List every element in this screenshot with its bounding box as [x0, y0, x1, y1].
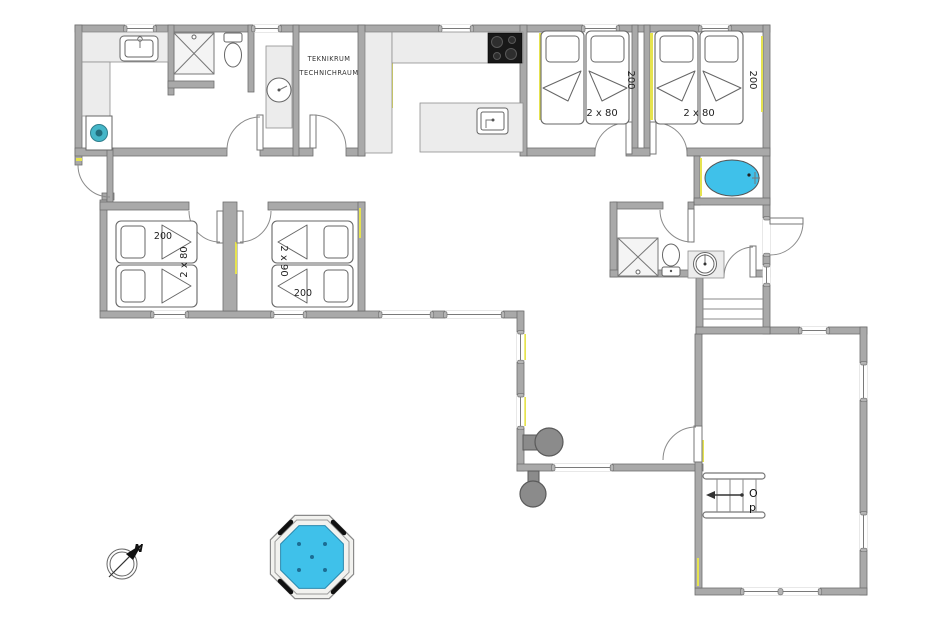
- bed-length-label: 200: [625, 70, 636, 89]
- compass-icon: N: [107, 542, 143, 579]
- kitchen: [365, 32, 523, 153]
- hot-tub-icon: [270, 515, 353, 598]
- window: [799, 327, 830, 335]
- window: [439, 25, 474, 33]
- bed-length-label: 200: [154, 231, 172, 242]
- kitchen-cabinet: [365, 32, 392, 153]
- toilet-icon: [224, 33, 242, 67]
- bedroom-top-middle: 2 x 80 200: [541, 31, 636, 124]
- bedroom-bottom-middle: 2 x 90 200: [272, 221, 353, 307]
- round-sink-icon: [688, 251, 724, 278]
- cooktop-icon: [488, 33, 522, 63]
- technical-room-label-1: TEKNIKRUM: [307, 55, 351, 63]
- island-sink-icon: [477, 108, 508, 134]
- window: [444, 311, 505, 319]
- window: [517, 394, 525, 430]
- bedroom-top-right: 2 x 80 200: [655, 31, 758, 124]
- door-bedroom-top-right: [650, 122, 687, 154]
- floor-plan-page: TEKNIKRUM TECHNICHRAUM: [0, 0, 930, 620]
- door-technical-room: [310, 115, 346, 148]
- bed-size-label: 2 x 90: [278, 245, 289, 276]
- window: [151, 311, 189, 319]
- technical-room-label-2: TECHNICHRAUM: [299, 69, 359, 77]
- bathtub-icon: [705, 160, 760, 196]
- shower-icon: [618, 238, 658, 276]
- window: [517, 331, 525, 364]
- technical-room: TEKNIKRUM TECHNICHRAUM: [299, 55, 359, 77]
- door-bathroom-1: [227, 115, 263, 150]
- door-bathroom-2: [660, 209, 694, 242]
- door-exterior-east: [763, 217, 803, 257]
- window: [252, 25, 282, 33]
- window: [379, 311, 434, 319]
- window: [860, 512, 868, 552]
- wood-stove-icon: [520, 471, 546, 507]
- shower-icon: [174, 33, 214, 74]
- door-bedroom-top-middle: [595, 122, 632, 154]
- window: [271, 311, 307, 319]
- window: [860, 362, 868, 402]
- bed-length-label: 200: [294, 288, 312, 299]
- washing-machine-icon: [86, 116, 112, 150]
- door-entrance: [78, 165, 110, 197]
- door-hall: [724, 246, 756, 277]
- window: [741, 588, 822, 596]
- bedroom-bottom-left: 200 2 x 80: [116, 221, 197, 307]
- window: [763, 264, 771, 287]
- window: [124, 25, 157, 33]
- bed-icon: [541, 31, 584, 124]
- bathroom-2: [618, 238, 724, 278]
- hall-steps-icon: [703, 299, 763, 319]
- door-bedroom-bottom-middle: [237, 211, 271, 243]
- bed-size-label: 2 x 80: [586, 108, 617, 119]
- bed-length-label: 200: [747, 70, 758, 89]
- stairs-direction-label-1: O: [749, 487, 758, 500]
- sink-icon: [120, 36, 158, 61]
- compass-north-label: N: [134, 542, 143, 555]
- door-annex: [663, 426, 702, 462]
- wood-stove-icon: [523, 428, 563, 456]
- bed-size-label: 2 x 80: [683, 108, 714, 119]
- stairs-up-icon: O p: [703, 473, 765, 518]
- bed-size-label: 2 x 80: [179, 246, 190, 277]
- dryer-icon: [266, 46, 292, 128]
- floor-plan: TEKNIKRUM TECHNICHRAUM: [0, 0, 930, 620]
- window: [552, 464, 614, 472]
- stairs-direction-label-2: p: [749, 501, 756, 514]
- toilet-icon: [662, 244, 680, 276]
